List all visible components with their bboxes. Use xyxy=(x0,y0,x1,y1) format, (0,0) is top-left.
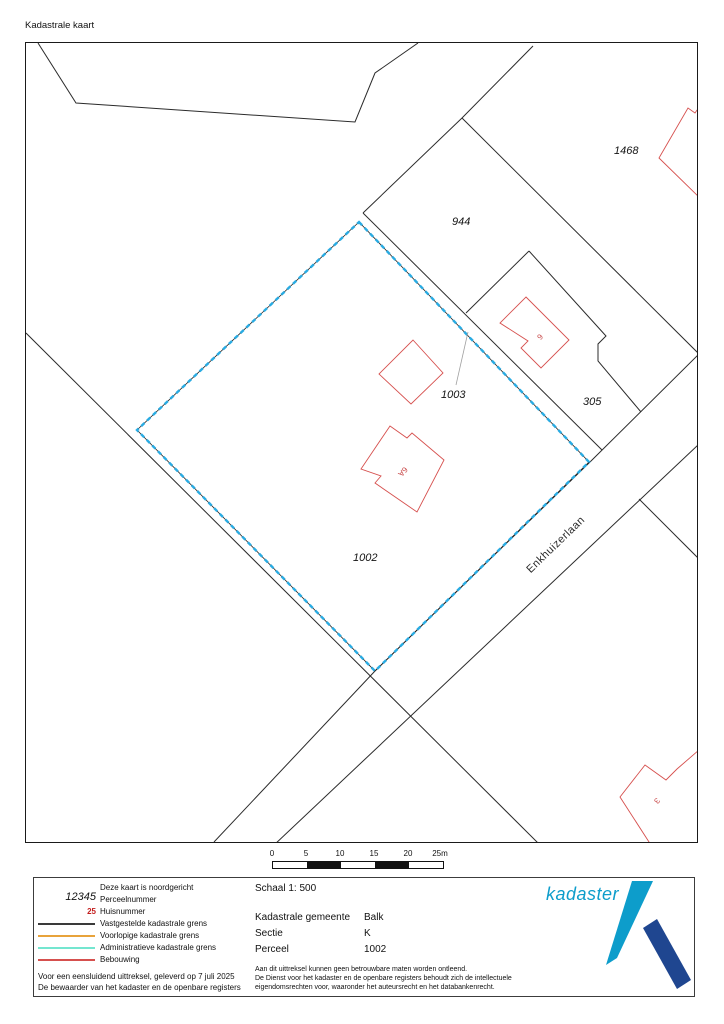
building-outline-6 xyxy=(500,297,569,368)
swatch-bebouwing xyxy=(38,959,95,961)
scalebar-segment xyxy=(375,862,409,868)
house-number-3: 3 xyxy=(652,796,662,806)
building-outline-1468 xyxy=(659,103,697,200)
house-number-6A: 6A xyxy=(396,465,410,479)
boundary-southeast-parcel xyxy=(639,499,697,561)
parcel-1003-leader-line xyxy=(456,332,468,385)
perceel-value: 1002 xyxy=(364,944,386,955)
scalebar-tick-5: 5 xyxy=(296,849,316,858)
disclaimer-line-1: Aan dit uittreksel kunnen geen betrouwba… xyxy=(255,966,467,973)
legend-item-label: Bebouwing xyxy=(100,955,140,964)
legend-item-label: Voorlopige kadastrale grens xyxy=(100,931,199,940)
parcel-number-1002: 1002 xyxy=(353,552,377,564)
logo-pen-shape xyxy=(606,881,653,965)
established-boundaries xyxy=(26,43,697,842)
road-edge-northwest xyxy=(214,354,697,842)
sectie-value: K xyxy=(364,928,371,939)
boundary-top-polygon xyxy=(38,43,418,122)
disclaimer-line-3: eigendomsrechten voor, waaronder het aut… xyxy=(255,984,495,991)
boundary-strip-1003 xyxy=(363,213,602,450)
scalebar-segment xyxy=(307,862,341,868)
logo-bar-shape xyxy=(643,919,691,989)
swatch-vastgestelde-grens xyxy=(38,923,95,925)
legend-info-box: Deze kaart is noordgericht 12345 Perceel… xyxy=(33,877,695,997)
perceelnummer-symbol: 12345 xyxy=(56,891,96,903)
street-label-enkhuizerlaan: Enkhuizerlaan xyxy=(524,514,587,576)
perceelnummer-label: Perceelnummer xyxy=(100,895,156,904)
disclaimer-line-2: De Dienst voor het kadaster en de openba… xyxy=(255,975,512,982)
parcel-1002-administrative-boundary xyxy=(137,222,589,671)
gemeente-value: Balk xyxy=(364,912,383,923)
scale-text: Schaal 1: 500 xyxy=(255,883,316,894)
sectie-label: Sectie xyxy=(255,928,283,939)
parcel-number-1003: 1003 xyxy=(441,389,466,401)
house-number-6: 6 xyxy=(535,332,545,342)
scalebar-tick-20: 20 xyxy=(398,849,418,858)
scalebar-segment xyxy=(341,862,375,868)
legend-item-label: Administratieve kadastrale grens xyxy=(100,943,216,952)
scalebar-tick-0: 0 xyxy=(262,849,282,858)
swatch-administratieve-grens xyxy=(38,947,95,949)
scalebar-tick-15: 15 xyxy=(364,849,384,858)
parcel-number-1468: 1468 xyxy=(614,145,639,157)
boundary-parcel6-east xyxy=(529,251,641,412)
perceel-label: Perceel xyxy=(255,944,289,955)
scalebar-tick-25m: 25m xyxy=(426,849,454,858)
north-note: Deze kaart is noordgericht xyxy=(100,883,193,892)
boundary-1468-west xyxy=(363,46,533,213)
swatch-voorlopige-grens xyxy=(38,935,95,937)
buildings xyxy=(361,103,697,842)
kadaster-logo-icon xyxy=(599,881,692,994)
map-canvas: 1468 944 1003 305 1002 6 6A 3 Enkhuizerl… xyxy=(26,43,697,842)
scalebar-tick-10: 10 xyxy=(330,849,350,858)
gemeente-label: Kadastrale gemeente xyxy=(255,912,350,923)
legend-item-label: Vastgestelde kadastrale grens xyxy=(100,919,207,928)
scalebar-segment xyxy=(273,862,307,868)
huisnummer-label: Huisnummer xyxy=(100,907,145,916)
parcel-1002-boundary-base xyxy=(137,222,589,671)
scalebar xyxy=(272,861,444,869)
building-outline-3 xyxy=(620,743,697,842)
huisnummer-symbol: 25 xyxy=(56,907,96,916)
scalebar-segment xyxy=(409,862,443,868)
legend-footnote-1: Voor een eensluidend uittreksel, gelever… xyxy=(38,972,235,981)
boundary-southwest-path xyxy=(26,333,541,842)
building-outline-shed xyxy=(379,340,443,404)
parcel-number-944: 944 xyxy=(452,216,470,228)
page-title: Kadastrale kaart xyxy=(25,20,94,31)
legend-footnote-2: De bewaarder van het kadaster en de open… xyxy=(38,983,241,992)
cadastral-map: 1468 944 1003 305 1002 6 6A 3 Enkhuizerl… xyxy=(25,42,698,843)
parcel-number-305: 305 xyxy=(583,396,602,408)
